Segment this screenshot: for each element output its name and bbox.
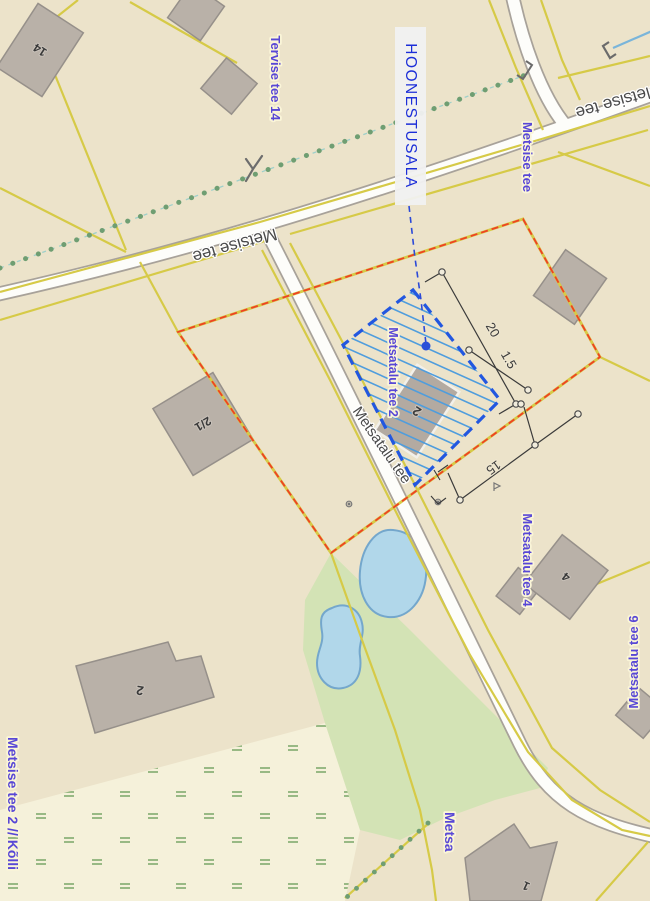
address-label-tervise-tee-14: Tervise tee 14 (268, 35, 283, 121)
address-label-metsatalu-tee-2: Metsatalu tee 2 (386, 327, 400, 417)
hoonestusala-label: HOONESTUSALA (402, 43, 419, 188)
address-label-metsatalu-tee-4: Metsatalu tee 4 (520, 513, 535, 607)
hoonestusala-callout: HOONESTUSALA (395, 27, 426, 205)
map-viewport[interactable]: 20 1.5 15 14 2/1 2 2 4 1 Metsise tee Met… (0, 0, 650, 901)
address-label-metsise-tee-2-kolli: Metsise tee 2 // Kõlli (5, 737, 21, 870)
address-label-metsatalu-tee-6: Metsatalu tee 6 (626, 615, 641, 708)
address-label-metsatalu-tee-bottom: Metsa (442, 812, 458, 852)
map-canvas[interactable]: 20 1.5 15 14 2/1 2 2 4 1 Metsise tee Met… (0, 0, 650, 901)
leader-dot (422, 342, 431, 351)
pond-lower (317, 605, 363, 688)
address-label-metsise-tee-branch: Metsise tee (520, 122, 535, 192)
